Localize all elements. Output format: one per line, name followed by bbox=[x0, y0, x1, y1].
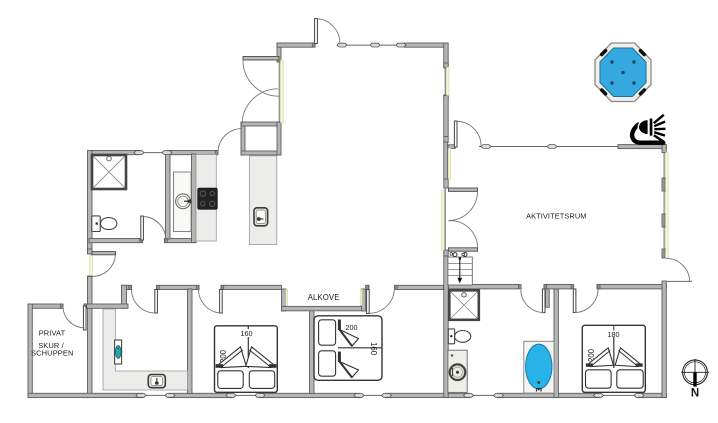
svg-text:N: N bbox=[691, 388, 699, 400]
svg-text:160: 160 bbox=[241, 329, 253, 338]
svg-text:160: 160 bbox=[369, 342, 378, 356]
svg-text:PRIVAT: PRIVAT bbox=[39, 329, 66, 338]
svg-text:SCHUPPEN: SCHUPPEN bbox=[31, 349, 73, 358]
svg-text:200: 200 bbox=[346, 323, 358, 332]
svg-text:AKTIVITETSRUM: AKTIVITETSRUM bbox=[526, 211, 586, 220]
svg-text:ALKOVE: ALKOVE bbox=[308, 293, 340, 302]
svg-text:180: 180 bbox=[608, 330, 620, 339]
